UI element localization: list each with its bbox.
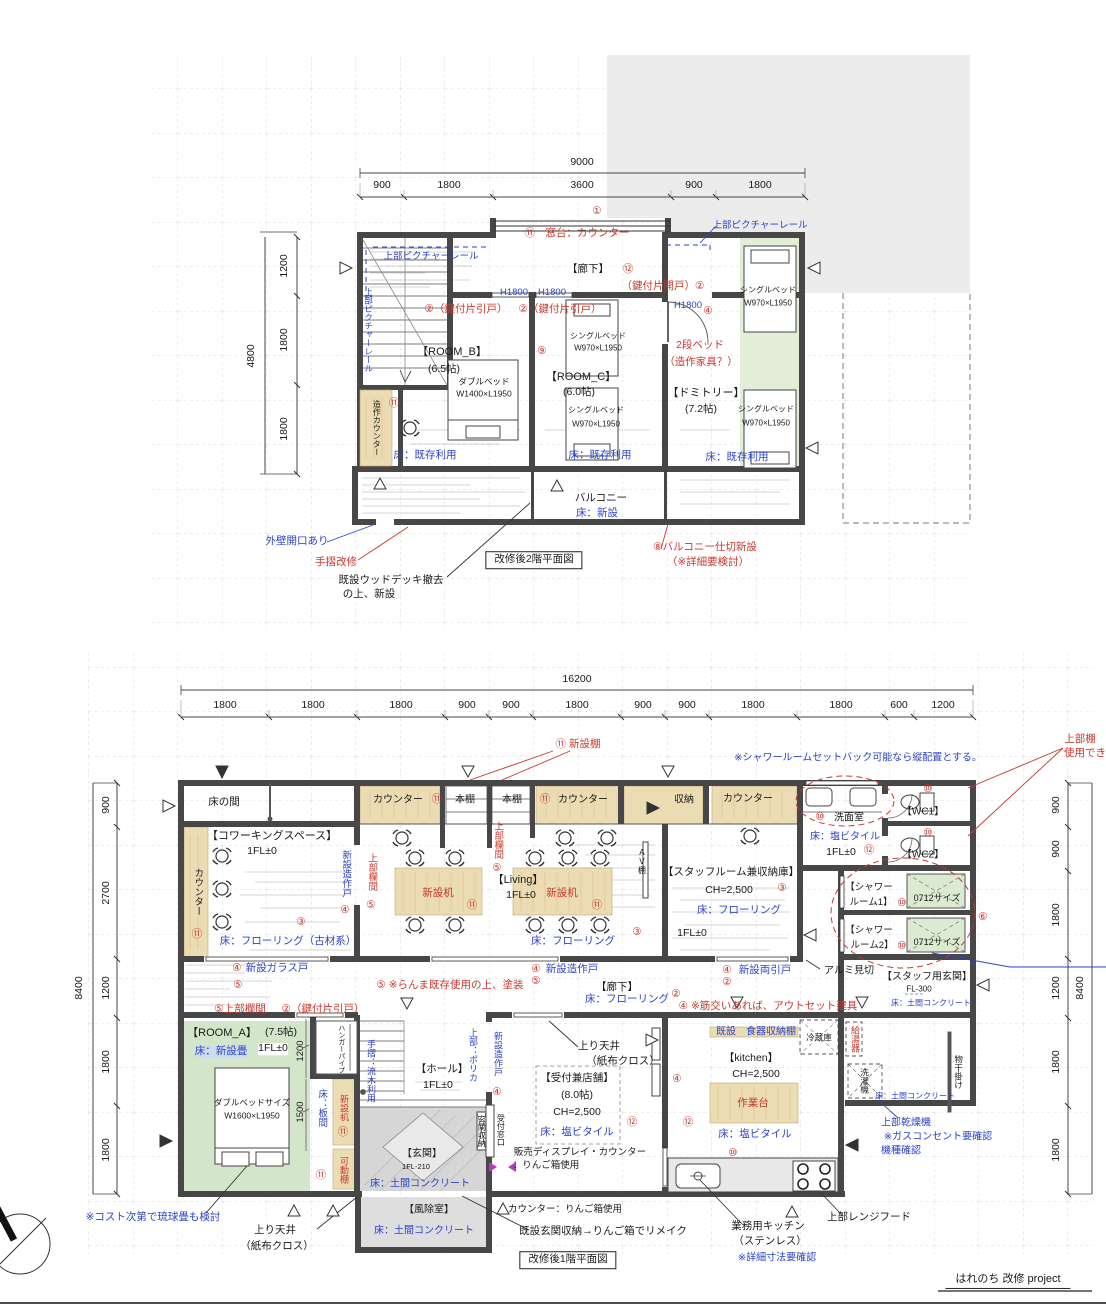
av-shelf [643, 842, 648, 898]
floorplan-graphics [0, 0, 1106, 1316]
counter-2f [360, 390, 392, 466]
north-compass-icon [0, 1206, 50, 1274]
bed-room-b [448, 360, 518, 440]
windbreak-floor [361, 1197, 486, 1247]
wall-opening [376, 519, 394, 525]
floor-plan-sheet: { "colors": { "red": "#c8372d", "blue": … [0, 0, 1106, 1316]
